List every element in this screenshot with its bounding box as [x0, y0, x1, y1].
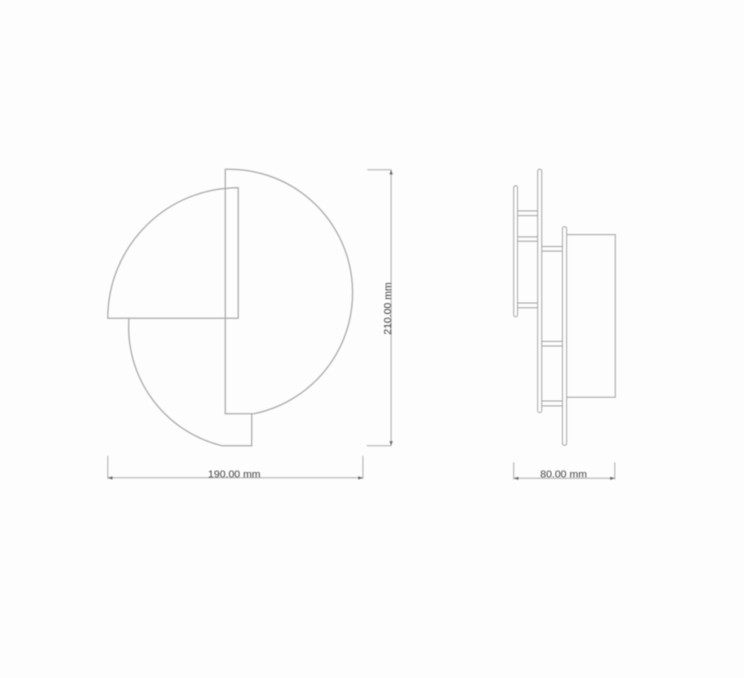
svg-text:210.00 mm: 210.00 mm: [382, 282, 394, 335]
svg-text:190.00 mm: 190.00 mm: [208, 468, 261, 480]
svg-text:80.00 mm: 80.00 mm: [540, 468, 587, 480]
